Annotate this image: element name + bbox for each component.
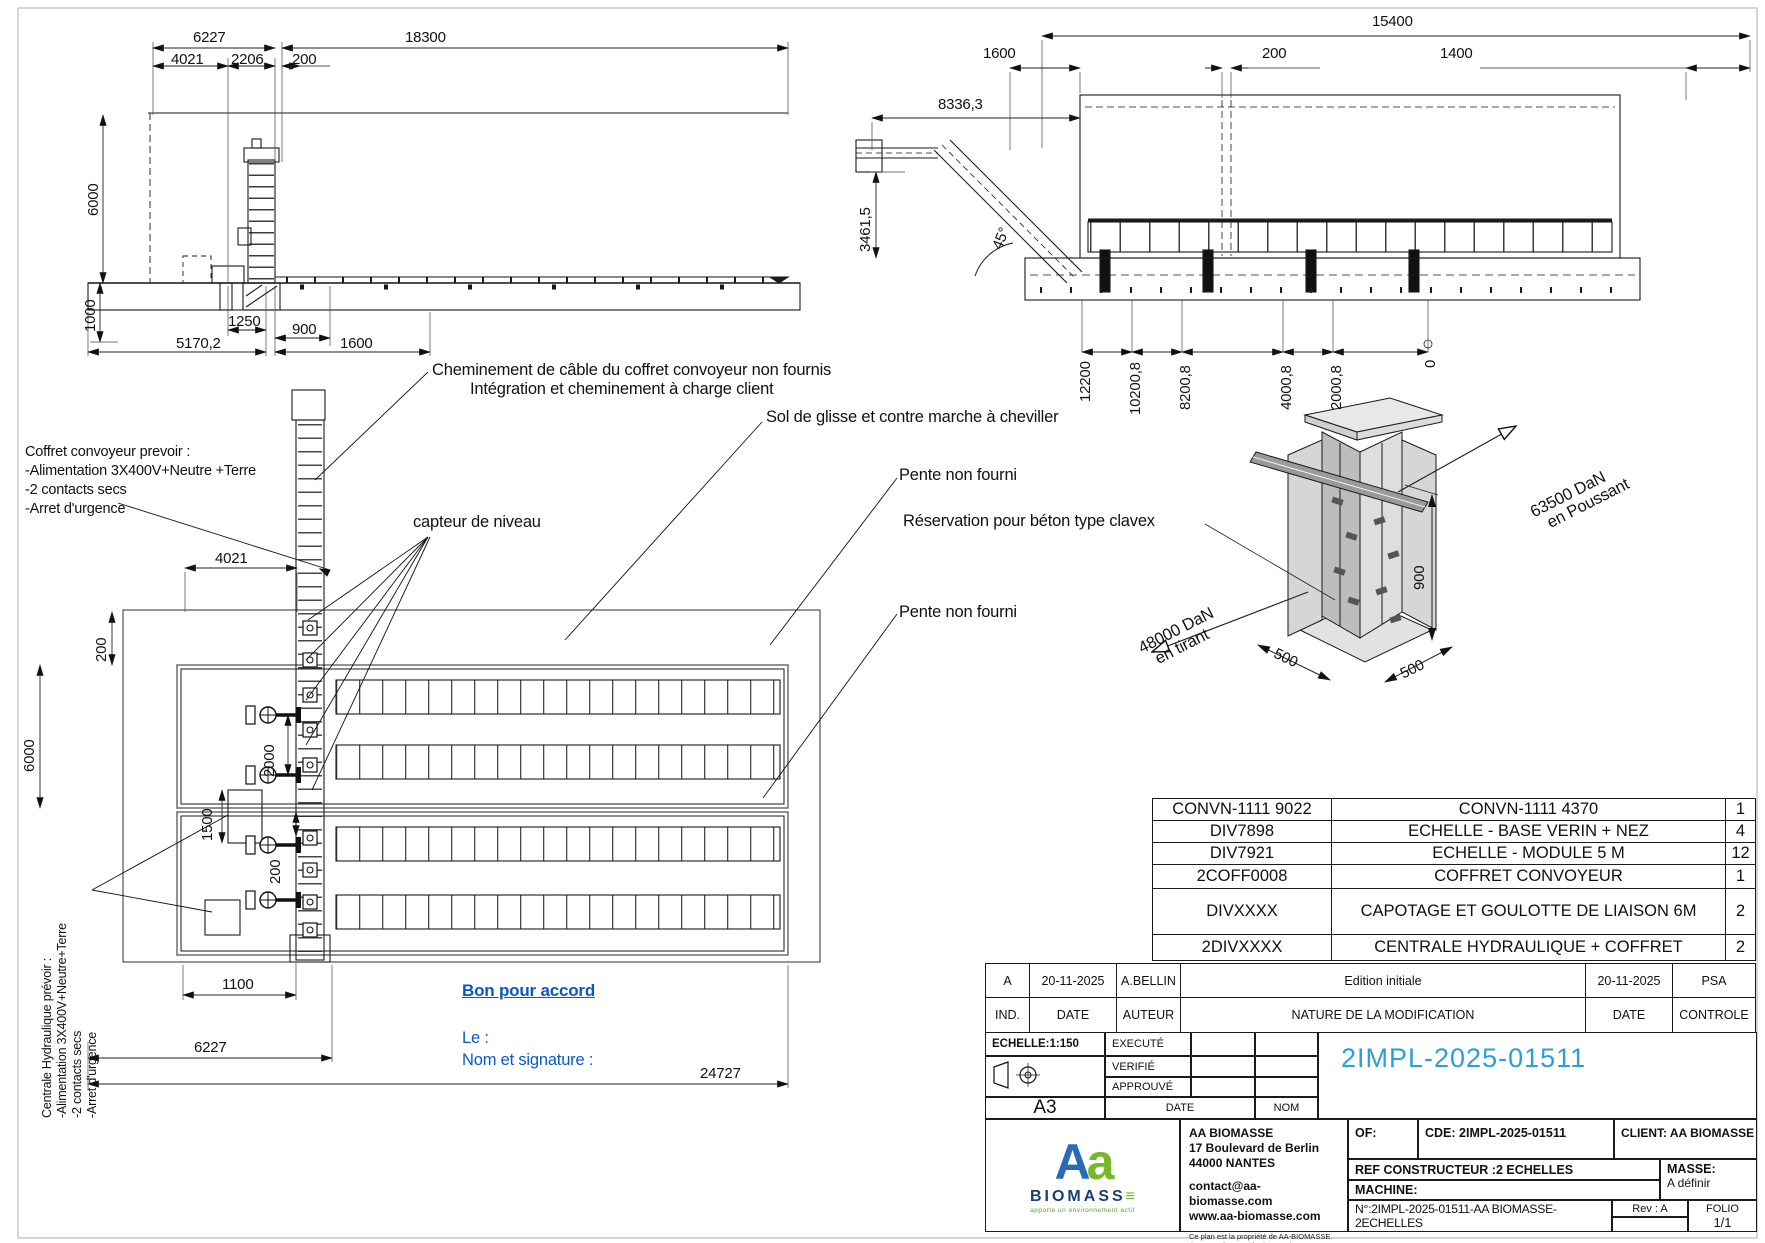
centrale-line-4: -Arret d'urgence — [85, 923, 100, 1118]
approved-value — [1191, 1077, 1255, 1097]
rev-h-date: DATE — [1030, 998, 1117, 1033]
approval-le: Le : — [462, 1030, 489, 1047]
of-cell: OF: — [1348, 1119, 1418, 1159]
dim-1400: 1400 — [1440, 46, 1473, 62]
verified-value — [1191, 1056, 1255, 1077]
logo-equals-icon: ≡ — [1126, 1188, 1135, 1205]
bom-table: CONVN-1111 9022 CONVN-1111 4370 1 DIV789… — [1152, 798, 1756, 961]
plan-dim-6000: 6000 — [22, 739, 38, 772]
bom-desc: CENTRALE HYDRAULIQUE + COFFRET — [1332, 935, 1726, 961]
dim-4021: 4021 — [171, 52, 204, 68]
company-address1: 17 Boulevard de Berlin — [1189, 1141, 1319, 1156]
dim-1250: 1250 — [228, 314, 261, 330]
table-row: DIVXXXX CAPOTAGE ET GOULOTTE DE LIAISON … — [1153, 889, 1756, 935]
rev-nature: Edition initiale — [1181, 964, 1586, 998]
rev-h-nature: NATURE DE LA MODIFICATION — [1181, 998, 1586, 1033]
chainage-12200: 12200 — [1078, 361, 1094, 402]
logo-letter-a2: a — [1087, 1134, 1111, 1190]
note-cable-line2: Intégration et cheminement à charge clie… — [470, 381, 773, 398]
dim-1600: 1600 — [340, 336, 373, 352]
chainage-0: 0 — [1423, 360, 1439, 368]
bom-ref: DIV7921 — [1153, 843, 1332, 865]
note-cable-line1: Cheminement de câble du coffret convoyeu… — [432, 362, 831, 379]
bom-ref: CONVN-1111 9022 — [1153, 799, 1332, 821]
plan-dim-2000: 2000 — [262, 744, 278, 777]
rev-ind: A — [986, 964, 1030, 998]
note-pente-1: Pente non fourni — [899, 467, 1017, 484]
chainage-10200: 10200,8 — [1128, 362, 1144, 415]
note-sol-de-glisse: Sol de glisse et contre marche à chevill… — [766, 409, 1058, 426]
rev-control: PSA — [1673, 964, 1756, 998]
rev-cell: Rev : A — [1612, 1200, 1688, 1217]
company-address2: 44000 NANTES — [1189, 1156, 1275, 1171]
folio-cell: FOLIO 1/1 — [1688, 1200, 1757, 1232]
table-row: IND. DATE AUTEUR NATURE DE LA MODIFICATI… — [986, 998, 1756, 1033]
table-row: 2DIVXXXX CENTRALE HYDRAULIQUE + COFFRET … — [1153, 935, 1756, 961]
nom-label-cell: NOM — [1255, 1097, 1318, 1119]
bom-desc: CONVN-1111 4370 — [1332, 799, 1726, 821]
dim-1600-right: 1600 — [983, 46, 1016, 62]
plan-dim-1500: 1500 — [200, 808, 216, 841]
dim-3461: 3461,5 — [858, 207, 874, 252]
executed-value — [1191, 1032, 1255, 1056]
chainage-4000: 4000,8 — [1279, 365, 1295, 410]
centrale-line-1: Centrale Hydraulique prévoir : — [40, 923, 55, 1118]
company-web: www.aa-biomasse.com — [1189, 1209, 1321, 1224]
company-address-cell: AA BIOMASSE 17 Boulevard de Berlin 44000… — [1180, 1119, 1348, 1232]
company-email: contact@aa-biomasse.com — [1189, 1179, 1343, 1209]
plan-dim-24727: 24727 — [700, 1066, 741, 1082]
coffret-line-4: -Arret d'urgence — [25, 500, 256, 519]
elevation-left-linework — [88, 113, 800, 310]
dim-900: 900 — [292, 322, 316, 338]
dim-200: 200 — [292, 52, 316, 68]
projection-symbol-icon — [986, 1057, 1046, 1093]
plan-dim-200a: 200 — [94, 638, 110, 662]
dim-8336: 8336,3 — [938, 97, 983, 113]
note-capteur: capteur de niveau — [413, 514, 541, 531]
masse-label: MASSE: — [1667, 1162, 1716, 1176]
rev-author: A.BELLIN — [1117, 964, 1181, 998]
approval-signature: Nom et signature : — [462, 1052, 593, 1069]
dim-6227: 6227 — [193, 30, 226, 46]
dim-2206: 2206 — [231, 52, 264, 68]
dim-6000: 6000 — [86, 183, 102, 216]
centrale-line-3: -2 contacts secs — [70, 923, 85, 1118]
rev-h-ind: IND. — [986, 998, 1030, 1033]
logo-biomasse-text: BIOMASS≡ — [1030, 1188, 1135, 1206]
elevation-right-extensions — [870, 40, 1750, 352]
bom-ref: DIVXXXX — [1153, 889, 1332, 935]
legal-notice: Ce plan est la propriété de AA-BIOMASSE.… — [1189, 1232, 1343, 1243]
note-pente-2: Pente non fourni — [899, 604, 1017, 621]
doc-number: 2IMPL-2025-01511 — [1341, 1043, 1586, 1074]
drawing-number-cell: N°:2IMPL-2025-01511-AA BIOMASSE-2ECHELLE… — [1348, 1200, 1612, 1232]
iso-view-linework — [1250, 398, 1442, 662]
coffret-line-2: -Alimentation 3X400V+Neutre +Terre — [25, 462, 256, 481]
plan-extensions — [88, 572, 788, 1090]
table-row: A 20-11-2025 A.BELLIN Edition initiale 2… — [986, 964, 1756, 998]
rev-h-author: AUTEUR — [1117, 998, 1181, 1033]
executed-name — [1255, 1032, 1318, 1056]
format-cell: A3 — [985, 1097, 1105, 1119]
verified-name — [1255, 1056, 1318, 1077]
chainage-2000: 2000,8 — [1329, 365, 1345, 410]
plan-dim-6227: 6227 — [194, 1040, 227, 1056]
bom-qty: 2 — [1726, 935, 1756, 961]
client-cell: CLIENT: AA BIOMASSE — [1614, 1119, 1757, 1159]
bom-ref: 2COFF0008 — [1153, 865, 1332, 889]
dim-15400: 15400 — [1372, 14, 1413, 30]
rev-date2: 20-11-2025 — [1586, 964, 1673, 998]
bom-qty: 1 — [1726, 865, 1756, 889]
dim-5170: 5170,2 — [176, 336, 221, 352]
dim-200-right: 200 — [1262, 46, 1286, 62]
bom-desc: ECHELLE - MODULE 5 M — [1332, 843, 1726, 865]
bom-ref: DIV7898 — [1153, 821, 1332, 843]
plan-dimlines — [40, 568, 788, 1084]
masse-cell: MASSE: A définir — [1660, 1159, 1757, 1200]
elevation-left-extensions — [88, 42, 788, 356]
bom-desc: ECHELLE - BASE VERIN + NEZ — [1332, 821, 1726, 843]
doc-number-cell: 2IMPL-2025-01511 — [1318, 1032, 1757, 1119]
projection-symbol-cell — [985, 1056, 1105, 1097]
logo-tagline: apporte un environnement actif — [1030, 1207, 1135, 1214]
company-logo-cell: Aa BIOMASS≡ apporte un environnement act… — [985, 1119, 1180, 1232]
machine-cell: MACHINE: — [1348, 1180, 1660, 1200]
chainage-8200: 8200,8 — [1178, 365, 1194, 410]
note-centrale-hydraulique: Centrale Hydraulique prévoir : -Alimenta… — [40, 923, 100, 1118]
coffret-line-3: -2 contacts secs — [25, 481, 256, 500]
rev-empty-cell — [1612, 1217, 1688, 1232]
note-reservation: Réservation pour béton type clavex — [903, 513, 1155, 530]
bom-qty: 12 — [1726, 843, 1756, 865]
bom-qty: 2 — [1726, 889, 1756, 935]
logo-biomasse-word: BIOMASS — [1030, 1188, 1126, 1205]
table-row: 2COFF0008 COFFRET CONVOYEUR 1 — [1153, 865, 1756, 889]
elevation-right-linework — [856, 95, 1640, 300]
bom-qty: 1 — [1726, 799, 1756, 821]
rev-h-date2: DATE — [1586, 998, 1673, 1033]
bom-desc: CAPOTAGE ET GOULOTTE DE LIAISON 6M — [1332, 889, 1726, 935]
rev-date: 20-11-2025 — [1030, 964, 1117, 998]
dim-18300: 18300 — [405, 30, 446, 46]
masse-value: A définir — [1667, 1176, 1710, 1190]
note-coffret-convoyeur: Coffret convoyeur prevoir : -Alimentatio… — [25, 443, 256, 519]
executed-label: EXECUTÉ — [1105, 1032, 1191, 1056]
cde-cell: CDE: 2IMPL-2025-01511 — [1418, 1119, 1614, 1159]
folio-value: 1/1 — [1713, 1216, 1731, 1229]
table-row: DIV7898 ECHELLE - BASE VERIN + NEZ 4 — [1153, 821, 1756, 843]
plan-dim-4021: 4021 — [215, 551, 248, 567]
drawing-sheet: 6227 18300 4021 2206 200 6000 1000 1250 … — [0, 0, 1765, 1243]
approved-name — [1255, 1077, 1318, 1097]
table-row: DIV7921 ECHELLE - MODULE 5 M 12 — [1153, 843, 1756, 865]
ref-constructeur-cell: REF CONSTRUCTEUR :2 ECHELLES — [1348, 1159, 1660, 1180]
elevation-left-dimlines — [88, 48, 788, 352]
approval-title: Bon pour accord — [462, 982, 595, 1000]
table-row: CONVN-1111 9022 CONVN-1111 4370 1 — [1153, 799, 1756, 821]
coffret-line-1: Coffret convoyeur prevoir : — [25, 443, 256, 462]
date-label-cell: DATE — [1105, 1097, 1255, 1119]
centrale-line-2: -Alimentation 3X400V+Neutre+Terre — [55, 923, 70, 1118]
bom-ref: 2DIVXXXX — [1153, 935, 1332, 961]
company-name: AA BIOMASSE — [1189, 1126, 1273, 1141]
legal-line-1: Ce plan est la propriété de AA-BIOMASSE. — [1189, 1232, 1343, 1241]
scale-cell: ECHELLE:1:150 — [985, 1032, 1105, 1056]
plan-dim-200b: 200 — [268, 860, 284, 884]
rev-h-control: CONTROLE — [1673, 998, 1756, 1033]
plan-dim-1100: 1100 — [222, 977, 253, 993]
logo-letter-a1: A — [1055, 1134, 1087, 1190]
revision-table: A 20-11-2025 A.BELLIN Edition initiale 2… — [985, 963, 1756, 1033]
iso-dim-900: 900 — [1412, 566, 1428, 590]
verified-label: VERIFIÉ — [1105, 1056, 1191, 1077]
dim-1000: 1000 — [83, 299, 99, 332]
bom-desc: COFFRET CONVOYEUR — [1332, 865, 1726, 889]
aa-biomasse-logo: Aa — [1055, 1138, 1111, 1186]
approved-label: APPROUVÉ — [1105, 1077, 1191, 1097]
bom-qty: 4 — [1726, 821, 1756, 843]
